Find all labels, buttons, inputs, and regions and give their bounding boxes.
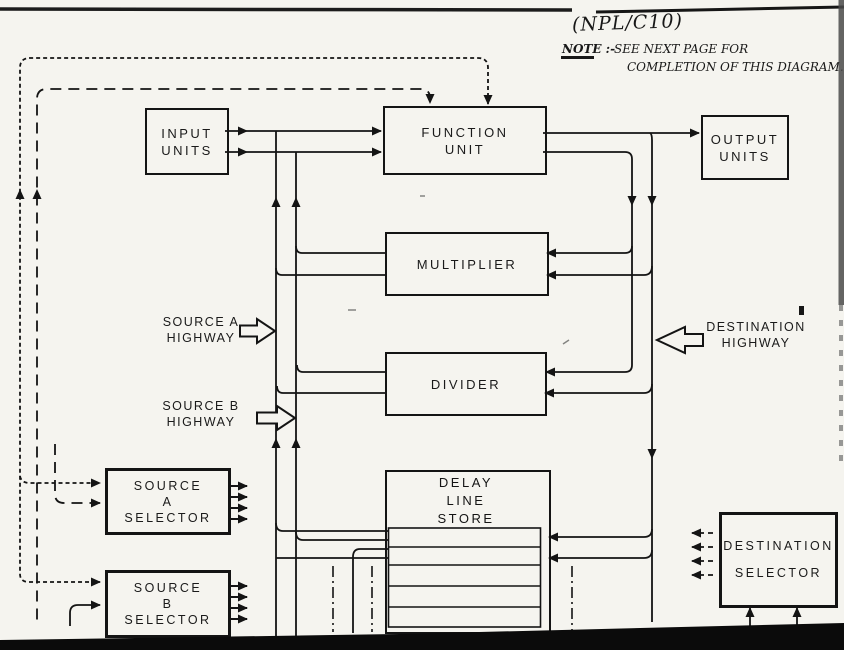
destination-highway-arrow-icon <box>657 327 703 353</box>
output-units-label: OUTPUT <box>711 131 779 148</box>
long-dash-branch-source-a <box>55 444 100 503</box>
scan-edge-right <box>839 0 844 305</box>
destination-selector-label: DESTINATION <box>723 533 834 560</box>
wire-multiplier-out1 <box>296 246 385 253</box>
destination-highway-line-outer <box>650 133 652 622</box>
destination-highway-line-inner <box>543 152 632 372</box>
divider-label: DIVIDER <box>431 376 501 393</box>
input-units-box: INPUT UNITS <box>145 108 229 175</box>
source-b-selector-label: SOURCE <box>134 580 202 596</box>
note-label: NOTE :- <box>562 42 615 56</box>
divider-box: DIVIDER <box>385 352 547 416</box>
wire-divider-out2 <box>277 386 385 393</box>
fine-dash-branch-source-a <box>20 476 100 483</box>
note-text-line1: SEE NEXT PAGE FOR <box>614 42 748 56</box>
wire-divider-out1 <box>297 365 385 372</box>
source-a-highway-arrow-icon <box>240 319 275 343</box>
note-text-line2: COMPLETION OF THIS DIAGRAM. <box>627 60 844 74</box>
dashed-control-wires <box>20 58 713 622</box>
source-a-selector-label: SOURCE <box>134 478 202 494</box>
multiplier-label: MULTIPLIER <box>417 256 518 273</box>
multiplier-box: MULTIPLIER <box>385 232 549 296</box>
source-b-selector-in2 <box>70 605 100 626</box>
wire-store-out3 <box>353 549 388 633</box>
function-unit-label: FUNCTION <box>421 124 508 141</box>
wire-to-store-in1 <box>549 529 652 537</box>
output-units-box: OUTPUT UNITS <box>701 115 789 180</box>
wire-to-multiplier-in2 <box>547 266 652 275</box>
wire-store-out1 <box>276 523 388 531</box>
source-b-highway-label: SOURCE B HIGHWAY <box>158 398 244 430</box>
drawing-reference: (NPL/C10) <box>572 10 684 36</box>
source-b-highway-arrow-icon <box>257 406 295 430</box>
wire-multiplier-out2 <box>276 268 385 275</box>
note-underline <box>561 56 594 59</box>
scanned-diagram-page: (NPL/C10) NOTE :- SEE NEXT PAGE FOR COMP… <box>0 0 844 650</box>
source-a-selector-box: SOURCE A SELECTOR <box>105 468 231 535</box>
scan-edge-top-left <box>0 9 572 10</box>
input-units-label: INPUT <box>161 125 213 142</box>
wire-to-store-in2 <box>549 550 652 558</box>
wire-to-multiplier-in1 <box>547 246 632 253</box>
scan-speck <box>799 306 804 315</box>
function-unit-box: FUNCTION UNIT <box>383 106 547 175</box>
source-b-selector-box: SOURCE B SELECTOR <box>105 570 231 638</box>
destination-highway-label: DESTINATION HIGHWAY <box>706 319 806 351</box>
source-a-highway-label: SOURCE A HIGHWAY <box>158 314 244 346</box>
wire-store-out2 <box>296 532 388 540</box>
flow-arrowheads <box>16 94 657 459</box>
destination-selector-box: DESTINATION SELECTOR <box>719 512 838 608</box>
wire-to-divider-in2 <box>545 384 652 393</box>
delay-line-store-label: DELAY LINE STORE <box>385 474 547 528</box>
long-dash-control-line <box>37 89 430 622</box>
